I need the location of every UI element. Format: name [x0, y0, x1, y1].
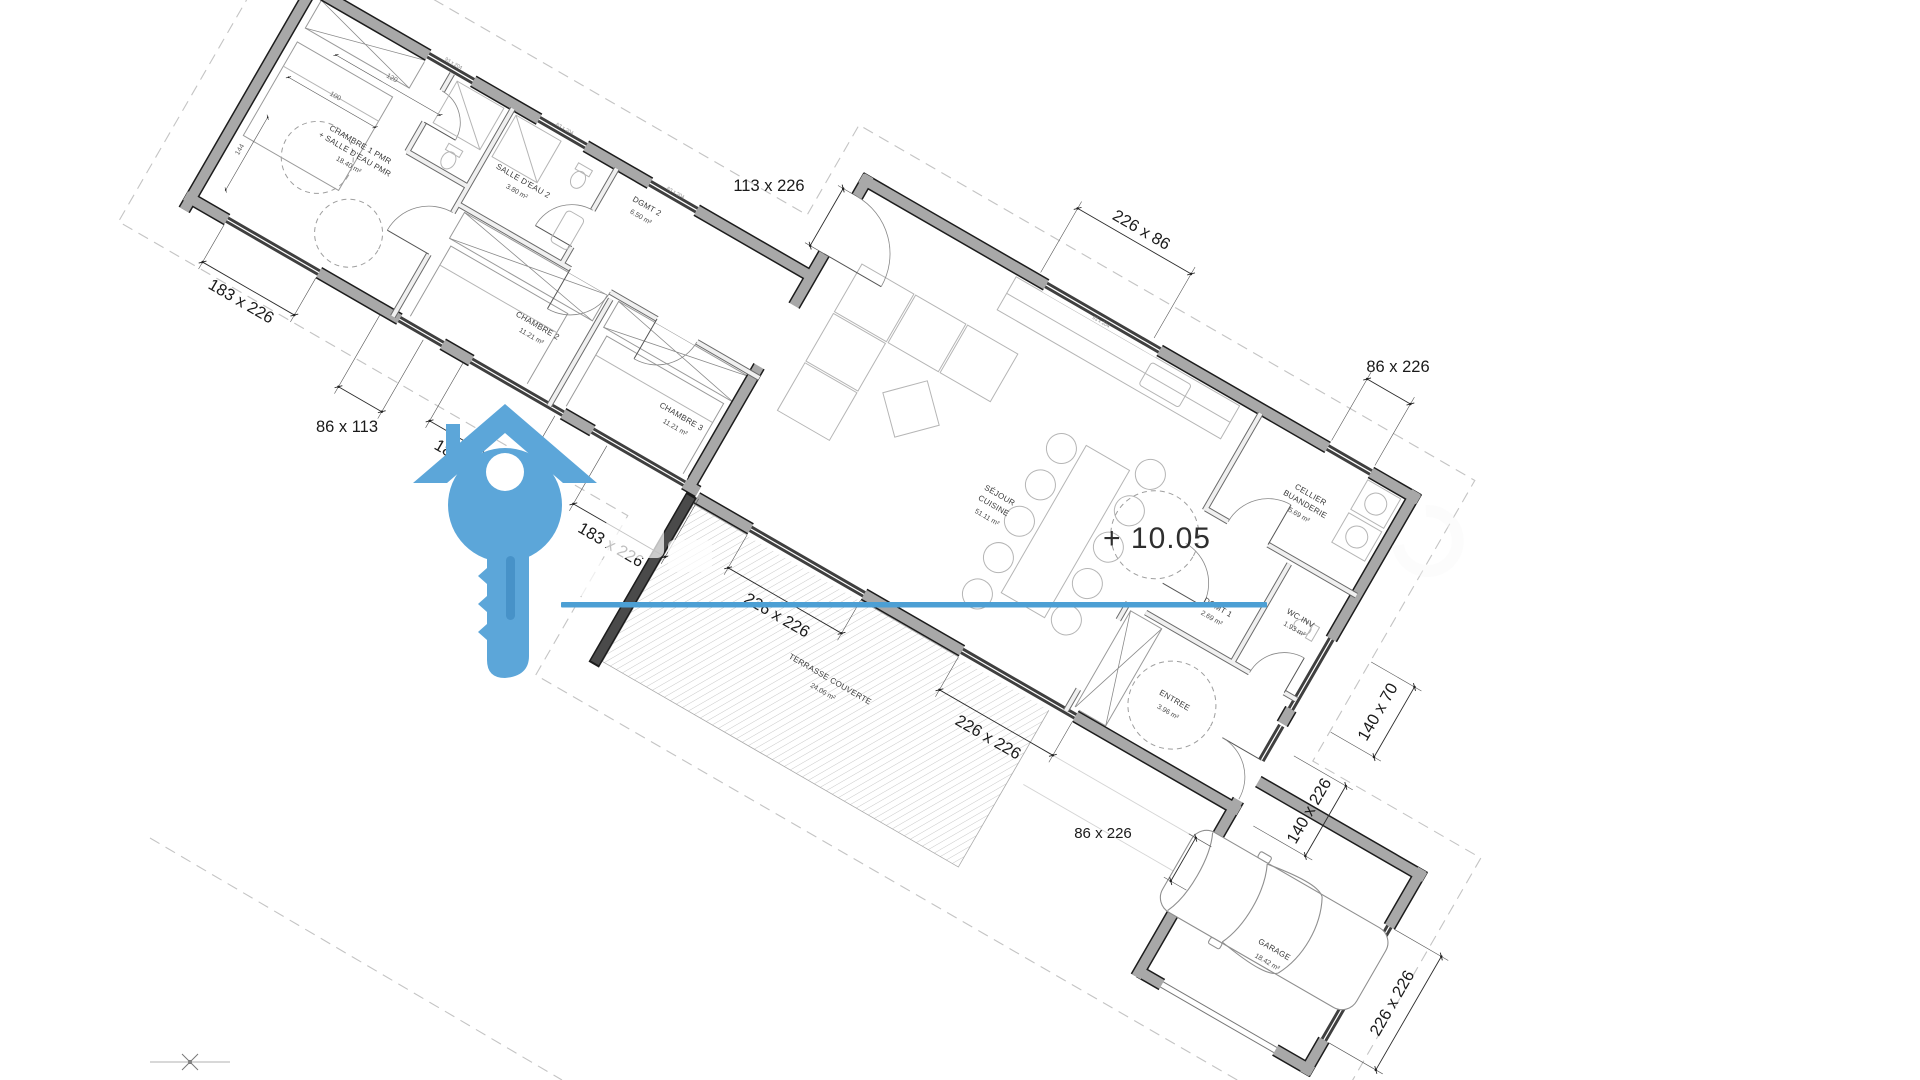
elevation-label: + 10.05: [1103, 522, 1211, 555]
page-background: [0, 0, 1920, 1080]
dimension-label: 86 x 226: [1366, 358, 1429, 376]
dimension-label: 86 x 113: [316, 418, 378, 436]
dimension-label: 86 x 226: [1074, 825, 1132, 842]
key-hole: [486, 453, 524, 491]
floor-plan-canvas: 183 x 226 183 x 226 183 x 226 226 x 226 …: [0, 0, 1920, 1080]
accent-line: [561, 602, 1267, 608]
dimension-label: 113 x 226: [733, 177, 804, 195]
key-slot: [506, 556, 515, 620]
